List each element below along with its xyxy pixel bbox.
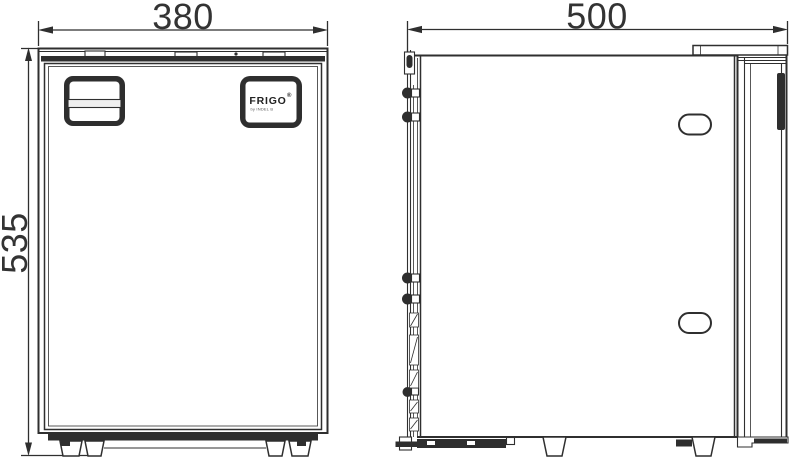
mounting-slot bbox=[412, 113, 420, 121]
technical-drawing-sheet: 380 535 bbox=[0, 0, 800, 463]
top-tab bbox=[175, 52, 197, 57]
base-tab bbox=[507, 438, 515, 445]
side-cabinet-body bbox=[415, 56, 738, 438]
side-top-cap bbox=[693, 46, 788, 56]
height-dimension-label: 535 bbox=[0, 212, 35, 274]
foot bbox=[85, 441, 104, 456]
fridge-dimension-drawing: 380 535 bbox=[0, 0, 800, 463]
oval-vent bbox=[679, 313, 711, 333]
foot bbox=[692, 437, 715, 456]
side-base bbox=[396, 437, 789, 456]
arrowhead-left bbox=[407, 26, 422, 33]
arrowhead-up bbox=[25, 48, 32, 62]
brand-name: FRIGO bbox=[249, 95, 286, 107]
base-rail bbox=[48, 434, 318, 441]
mounting-slot bbox=[412, 274, 420, 282]
top-tab bbox=[263, 52, 285, 57]
arrowhead-left bbox=[38, 26, 53, 33]
depth-dimension-label: 500 bbox=[566, 0, 628, 37]
front-base bbox=[48, 434, 318, 457]
width-dimension-label: 380 bbox=[152, 0, 214, 37]
door-handle bbox=[64, 76, 125, 126]
arrowhead-right bbox=[773, 26, 788, 33]
foot bbox=[266, 441, 285, 456]
base-rail-notch bbox=[427, 441, 435, 445]
brand-subtext: by INDEL B bbox=[251, 107, 274, 112]
brand-badge: FRIGO ® by INDEL B bbox=[240, 76, 302, 128]
rear-foot-bracket bbox=[396, 442, 418, 448]
handle-grip-slot bbox=[68, 100, 121, 108]
door-bottom-seal bbox=[754, 439, 787, 444]
base-rail-notch bbox=[467, 441, 475, 445]
mounting-slot bbox=[412, 295, 420, 303]
compressor-bracket bbox=[676, 440, 692, 447]
front-width-dimension: 380 bbox=[38, 0, 328, 46]
cap-outline bbox=[693, 46, 788, 56]
mounting-slot bbox=[412, 89, 420, 97]
top-pin bbox=[234, 52, 237, 55]
handle-profile bbox=[777, 73, 785, 130]
rear-mounting-flange bbox=[402, 50, 420, 437]
mounting-slot bbox=[412, 388, 419, 395]
foot-clip bbox=[297, 442, 306, 447]
front-view: 380 535 bbox=[0, 0, 328, 456]
foot-clip bbox=[61, 442, 70, 447]
top-tab bbox=[85, 51, 105, 57]
arrowhead-right bbox=[313, 26, 328, 33]
side-vents bbox=[679, 115, 711, 334]
oval-vent bbox=[679, 115, 711, 135]
brand-mark: ® bbox=[287, 92, 292, 99]
foot bbox=[543, 437, 566, 456]
flange-top-stud bbox=[407, 55, 413, 68]
side-depth-dimension: 500 bbox=[407, 0, 788, 52]
arrowhead-down bbox=[25, 443, 32, 457]
side-view: 500 bbox=[396, 0, 789, 456]
side-door-profile bbox=[738, 56, 787, 444]
